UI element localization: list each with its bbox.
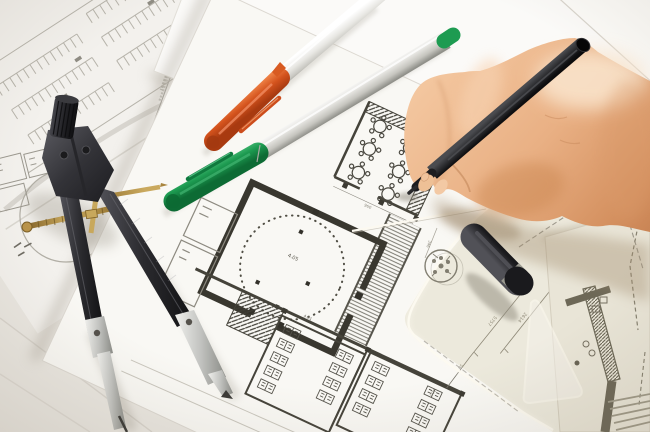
- vignette: [0, 0, 650, 432]
- photo-architect-blueprints: 960 3702 960: [0, 0, 650, 432]
